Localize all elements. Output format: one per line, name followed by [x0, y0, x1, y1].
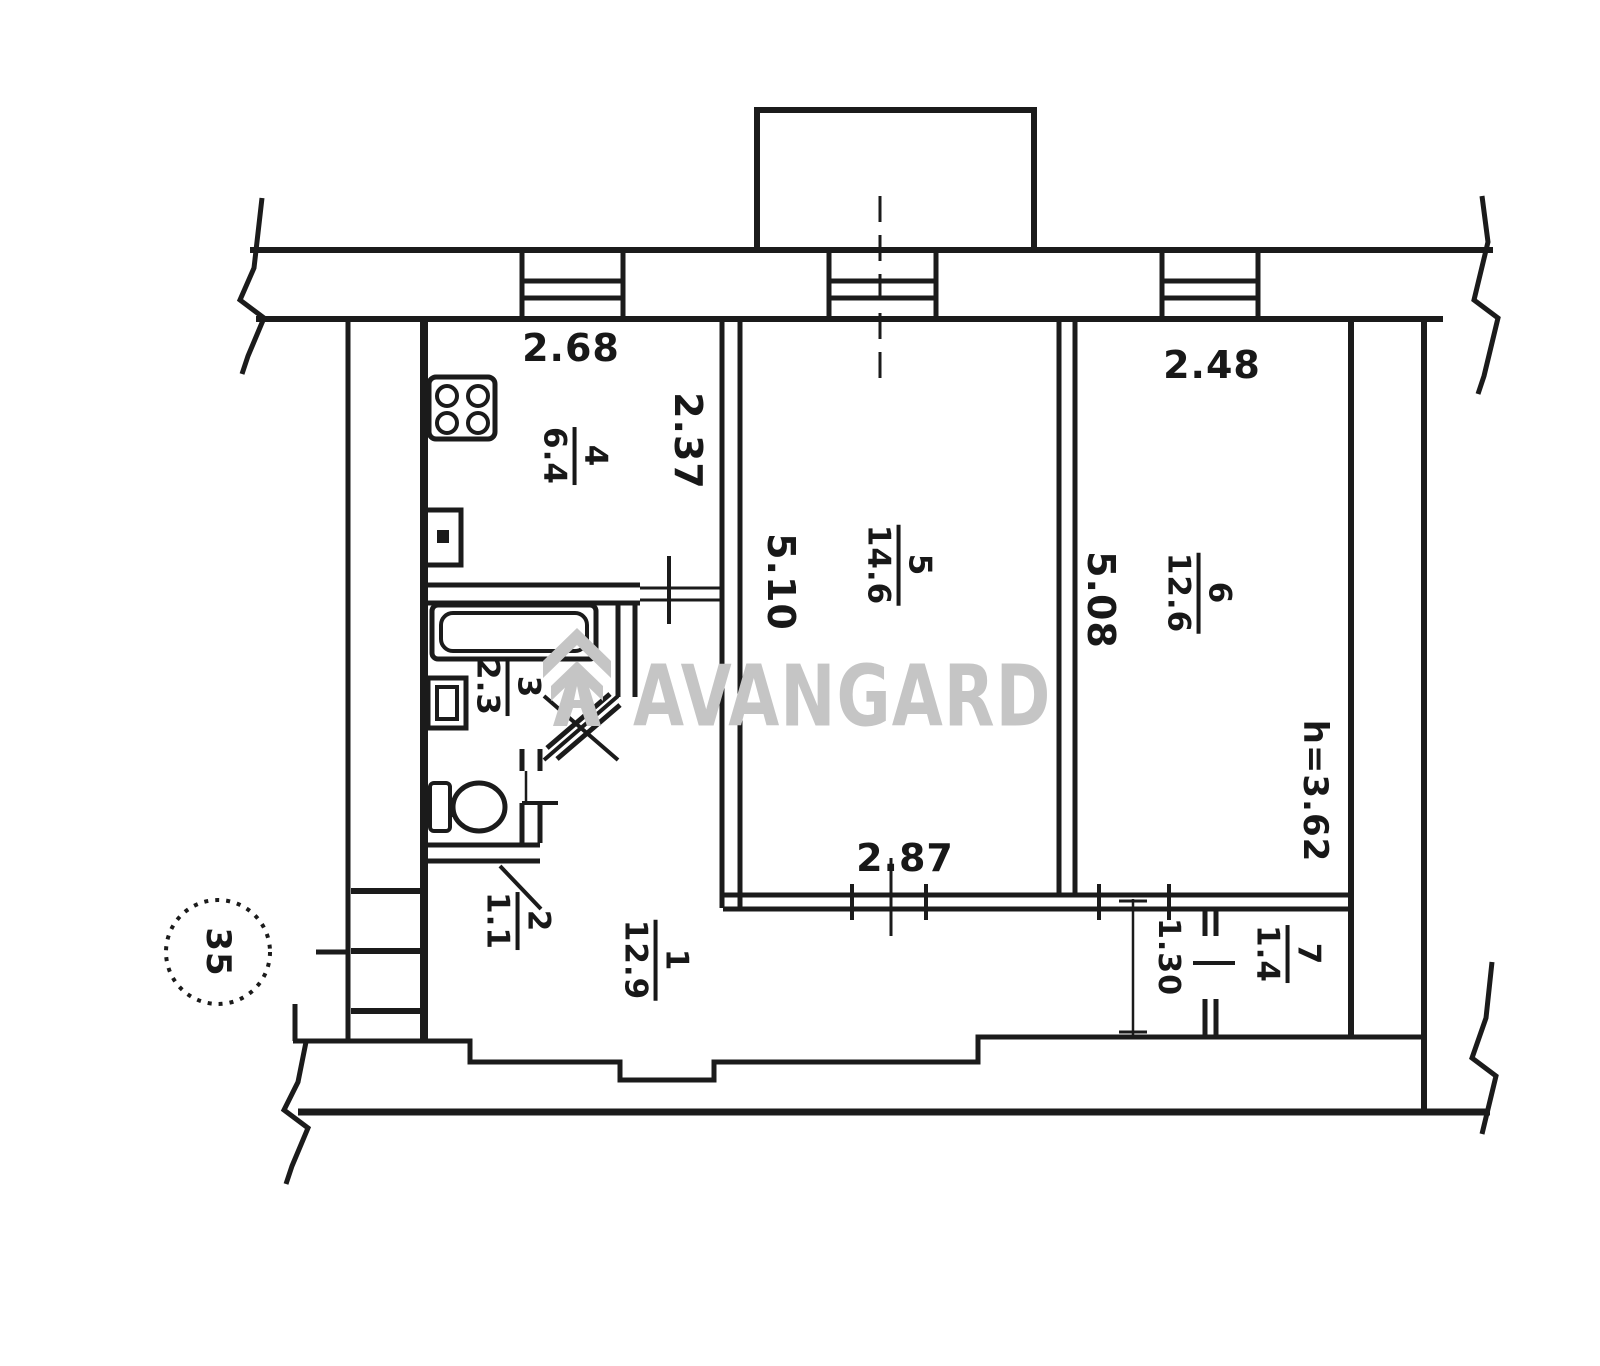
dim-room5-width: 2.87: [856, 839, 954, 877]
break-line-top-right: [1474, 196, 1498, 394]
staircase-symbol: [351, 891, 424, 1011]
room-label-wc: 2 1.1: [481, 892, 554, 950]
toilet-icon: [430, 783, 505, 831]
washbasin-icon: [428, 678, 466, 728]
dim-kitchen-depth: 2.37: [669, 392, 707, 490]
room-label-room5: 5 14.6: [862, 525, 935, 606]
room-label-bathroom: 3 2.3: [471, 658, 544, 716]
floor-plan: 2.68 2.48 2.87 2.37 5.10 5.08 h=3.62 1.3…: [0, 0, 1600, 1366]
dim-room6-width: 2.48: [1163, 346, 1261, 384]
dimension-lines: [891, 858, 1147, 1035]
room-label-kitchen: 4 6.4: [538, 427, 611, 485]
break-line-bottom-right: [1472, 962, 1496, 1134]
room-label-closet: 7 1.4: [1251, 925, 1324, 983]
unit-number: 35: [201, 927, 235, 976]
kitchen-window-icon: [522, 253, 623, 316]
dim-kitchen-width: 2.68: [522, 329, 620, 367]
dim-room6-depth: 5.08: [1082, 551, 1120, 649]
break-line-top-left: [240, 198, 264, 374]
ceiling-height-label: h=3.62: [1298, 720, 1332, 863]
room-label-hall: 1 12.9: [619, 920, 692, 1001]
balcony-outline: [757, 110, 1034, 378]
kitchen-sink-icon: [425, 510, 461, 565]
dim-corridor-width: 1.30: [1153, 918, 1183, 996]
room-label-room6: 6 12.6: [1162, 553, 1235, 634]
watermark-text: AVANGARD: [633, 655, 1051, 739]
bathtub-icon: [432, 605, 596, 659]
dim-room5-depth: 5.10: [762, 533, 800, 631]
room6-window-icon: [1162, 253, 1258, 316]
room5-window-icon: [829, 253, 936, 316]
stove-icon: [429, 377, 495, 439]
